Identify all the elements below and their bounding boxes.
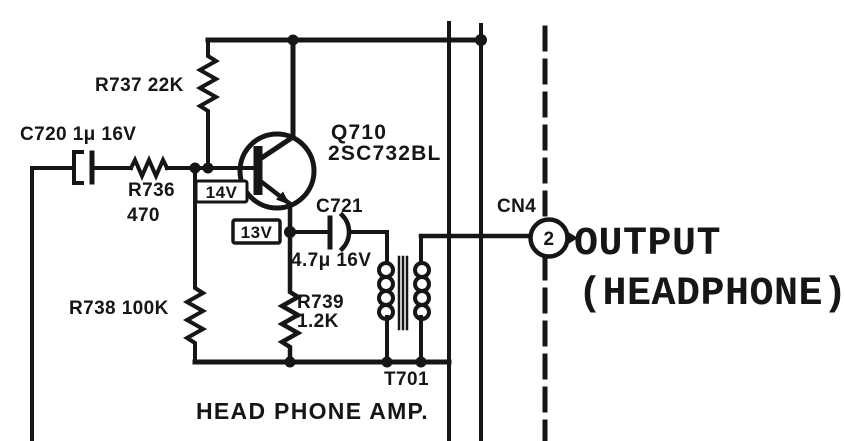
c721-value-label: 4.7μ 16V	[291, 250, 371, 271]
output-label-line2: (HEADPHONE)	[578, 272, 845, 317]
collector-wire	[263, 40, 293, 157]
resistor-r737-symbol	[200, 40, 216, 168]
schematic-canvas: 2 14V 13V R737 22K C720 1μ 16V R736 470 …	[0, 0, 845, 441]
t701-label: T701	[384, 369, 429, 390]
resistor-r736-symbol	[131, 160, 167, 176]
t701-primary-loop	[379, 277, 393, 291]
c721-plate-right	[342, 215, 349, 249]
q710-name-label: Q710	[331, 121, 387, 144]
voltage-base-label: 14V	[206, 183, 238, 202]
t701-secondary-loop	[415, 263, 429, 277]
junction-dot	[475, 34, 487, 46]
t701-secondary-loop	[415, 291, 429, 305]
cn4-label: CN4	[497, 196, 536, 217]
r738-label: R738 100K	[69, 298, 169, 319]
junction-dot	[190, 163, 201, 174]
q710-base-bar	[254, 146, 263, 195]
cn4-pin-number: 2	[544, 229, 555, 250]
output-label-line1: OUTPUT	[574, 222, 721, 267]
transformer-t701-symbol	[379, 257, 429, 329]
q710-part-label: 2SC732BL	[328, 142, 441, 165]
t701-primary-loop	[379, 291, 393, 305]
c721-name-label: C721	[316, 196, 363, 217]
junction-dot	[285, 357, 296, 368]
r737-label: R737 22K	[95, 75, 184, 96]
r736-name-label: R736	[128, 180, 175, 201]
r736-value-label: 470	[127, 205, 160, 226]
component-labels: R737 22K C720 1μ 16V R736 470 Q710 2SC73…	[20, 75, 536, 424]
t701-secondary-loop	[415, 277, 429, 291]
voltage-callouts: 14V 13V	[196, 181, 280, 243]
c720-plate-left	[74, 152, 82, 183]
circuit-caption: HEAD PHONE AMP.	[196, 398, 429, 424]
capacitor-c720-symbol	[74, 152, 92, 183]
r739-value-label: 1.2K	[297, 311, 339, 332]
c720-label: C720 1μ 16V	[20, 124, 136, 145]
output-signal-labels: OUTPUT (HEADPHONE)	[574, 222, 845, 317]
r739-name-label: R739	[297, 292, 344, 313]
t701-core-lines	[399, 257, 407, 329]
junction-dot	[416, 357, 427, 368]
junction-dot	[203, 163, 214, 174]
capacitor-c721-symbol	[330, 215, 349, 249]
t701-primary-loop	[379, 263, 393, 277]
voltage-emitter-label: 13V	[241, 223, 273, 242]
connector-cn4-pin2: 2	[531, 220, 579, 257]
junction-dot	[288, 35, 299, 46]
input-wire-left	[32, 168, 72, 441]
junction-dot	[382, 357, 393, 368]
headphone-amp-schematic: 2 14V 13V R737 22K C720 1μ 16V R736 470 …	[0, 0, 845, 441]
junction-dot	[284, 226, 296, 238]
